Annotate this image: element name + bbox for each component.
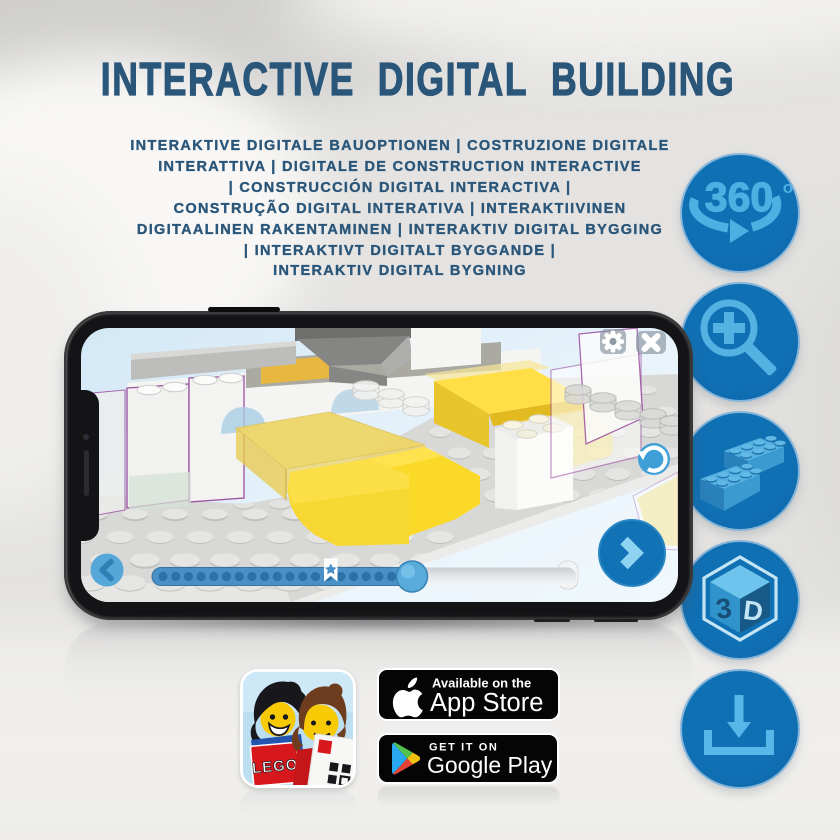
svg-text:Google Play: Google Play: [427, 752, 553, 778]
svg-text:App Store: App Store: [430, 689, 543, 717]
svg-text:o: o: [782, 178, 792, 197]
svg-text:360: 360: [704, 174, 772, 220]
svg-text:D: D: [741, 594, 764, 626]
